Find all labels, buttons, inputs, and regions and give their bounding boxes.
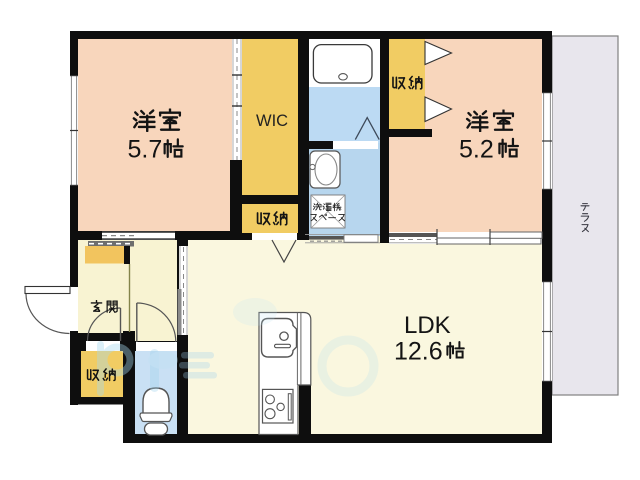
svg-text:LDK: LDK [404,312,451,339]
svg-text:12.6: 12.6 [394,338,443,366]
svg-text:5.2: 5.2 [459,136,494,164]
svg-text:5.7: 5.7 [128,136,163,164]
svg-text:WIC: WIC [256,112,288,130]
